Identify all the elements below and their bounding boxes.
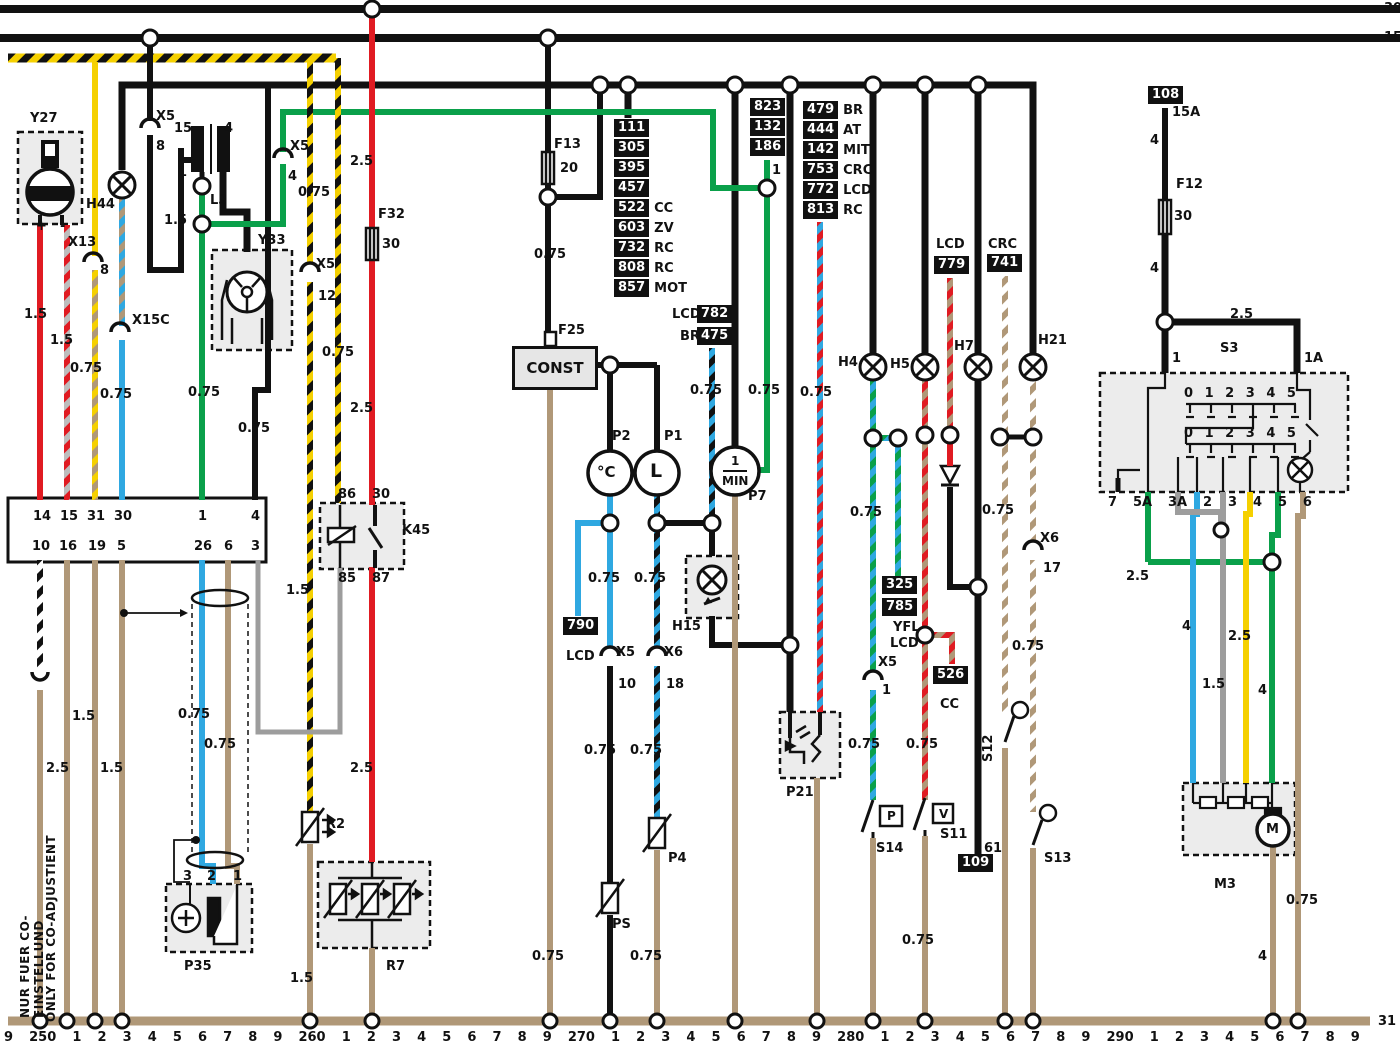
track-number: 8 [248,1030,257,1045]
k45-label: K45 [402,524,430,537]
gauge-label: 4 [1258,684,1267,697]
gauge-label: 0.75 [748,384,780,397]
cluster-pin: 6 [224,540,233,553]
track-number: 6 [1275,1030,1284,1045]
gauge-label: 1.5 [50,334,73,347]
fuse-rating: 30 [382,238,400,251]
track-number: 5 [981,1030,990,1045]
p7-gauge-num: 1 [731,455,739,467]
cluster-pin: 15 [60,510,78,523]
h15-label: H15 [672,620,701,633]
r7-label: R7 [386,960,405,973]
y33-label: Y33 [258,234,286,247]
track-number: 5 [442,1030,451,1045]
track-number: 6 [1006,1030,1015,1045]
s13-switch-icon [1033,805,1056,845]
h44-lamp-icon [109,172,135,198]
x15c-label: X15C [132,314,170,327]
gauge-label: 0.75 [178,708,210,721]
s3-position: 1 [1205,426,1214,441]
rail-30-label: 30 [1384,2,1400,15]
gauge-label: 4 [1258,950,1267,963]
gauge-label: 0.75 [902,934,934,947]
track-number: 2 [367,1030,376,1045]
f25-label: F25 [558,324,585,337]
track-number: 1 [342,1030,351,1045]
track-number: 1 [72,1030,81,1045]
track-number: 4 [686,1030,695,1045]
track-ref-790: 790 [563,617,598,635]
cluster-pin: 1 [198,510,207,523]
pin-label: 4 [288,170,297,183]
track-ref-779: 779 [934,256,969,274]
gauge-label: 0.75 [630,950,662,963]
s3-position: 3 [1246,426,1255,441]
cluster-pin: 3 [251,540,260,553]
track-ref-325: 325 [882,576,917,594]
track-number: 3 [392,1030,401,1045]
r2-label: R2 [326,818,345,831]
gauge-label: 1.5 [1202,678,1225,691]
track-ref-109: 109 [958,854,993,872]
gauge-label: 0.75 [70,362,102,375]
gauge-label: 4 [1150,134,1159,147]
track-ref-475: 475 [697,327,732,345]
f12-fuse-icon [1159,200,1171,234]
variant-label: LCD [566,650,595,663]
s3-pin: 5A [1133,495,1152,510]
track-ref-list-823: 823132186 [750,98,785,158]
track-ref-chip: 808 [614,259,649,277]
track-number: 2 [97,1030,106,1045]
s14-label: S14 [876,842,903,855]
cluster-pin: 30 [114,510,132,523]
gauge-label: 1.5 [24,308,47,321]
pin-label: 87 [372,572,390,585]
track-ref-list-111: 111305395457522CC603ZV732RC808RC857MOT [614,118,687,298]
variant-suffix: RC [654,261,674,276]
track-number: 8 [1056,1030,1065,1045]
h7-label: H7 [954,340,974,353]
track-number: 6 [198,1030,207,1045]
track-ref-chip: 132 [750,118,785,136]
track-number: 8 [787,1030,796,1045]
gauge-label: 0.75 [1286,894,1318,907]
track-ref-chip: 444 [803,121,838,139]
s11-label: S11 [940,828,967,841]
x6-label: X6 [664,646,683,659]
cluster-pin: 5 [117,540,126,553]
gauge-label: 2.5 [1230,308,1253,321]
cluster-pin: 26 [194,540,212,553]
s3-label: S3 [1220,342,1238,355]
h21-label: H21 [1038,334,1067,347]
pin-label: 4 [224,122,233,135]
track-ref-785: 785 [882,598,917,616]
x5-label: X5 [290,140,309,153]
s3-position: 0 [1184,426,1193,441]
pin-label: 12 [318,290,336,303]
variant-suffix: LCD [843,183,872,198]
cluster-pin: 4 [251,510,260,523]
track-number: 1 [1150,1030,1159,1045]
track-ref-chip: 186 [750,138,785,156]
track-number: 1 [880,1030,889,1045]
x13-label: X13 [68,236,96,249]
gauge-label: 0.75 [322,346,354,359]
s3-position: 4 [1266,386,1275,401]
gauge-label: 1.5 [72,710,95,723]
cluster-pin: 14 [33,510,51,523]
track-ref-chip: 111 [614,119,649,137]
h5-lamp-icon [912,354,938,380]
x5-label: X5 [316,258,335,271]
variant-label: CRC [988,238,1017,251]
s3-pin: 5 [1278,495,1287,510]
s11-v-symbol: V [939,808,948,820]
bottom-track-numbers: 9250123456789260123456789270123456789280… [4,1030,1360,1045]
gauge-label: 2.5 [46,762,69,775]
h44-label: H44 [86,198,115,211]
track-number: 2 [636,1030,645,1045]
gauge-label: 4 [1150,262,1159,275]
track-number: 1 [611,1030,620,1045]
pin-label: 86 [338,488,356,501]
track-number: 3 [931,1030,940,1045]
gauge-label: 4 [1182,620,1191,633]
track-number: 4 [417,1030,426,1045]
s3-position-row-2: 012345 [1184,426,1296,441]
s3-position: 1 [1205,386,1214,401]
track-number: 3 [1200,1030,1209,1045]
gauge-label: 0.75 [906,738,938,751]
s14-switch-icon [862,800,902,838]
track-ref-chip: 457 [614,179,649,197]
gauge-label: 0.75 [238,422,270,435]
track-number: 4 [1225,1030,1234,1045]
track-number: 260 [298,1030,325,1045]
gauge-label: 0.75 [982,504,1014,517]
p1-gauge-unit: L [650,462,662,481]
fuse-rating: 20 [560,162,578,175]
track-ref-chip: 753 [803,161,838,179]
rail-31-label: 31 [1378,1015,1396,1028]
pin-label: 1 [772,164,781,177]
s14-p-symbol: P [887,810,896,822]
plus-label: + [36,220,47,233]
cluster-pin: 31 [87,510,105,523]
gauge-label: 2.5 [1126,570,1149,583]
x6-label: X6 [1040,532,1059,545]
diagram-canvas [0,0,1400,1046]
s3-pin: 3 [1228,495,1237,510]
gauge-label: 0.75 [1012,640,1044,653]
x5-label: X5 [156,110,175,123]
pin-label: 17 [1043,562,1061,575]
pin-label: 3 [183,870,192,883]
gauge-label: 2.5 [350,402,373,415]
variant-suffix: MOT [654,281,687,296]
variant-label: LCD [890,637,919,650]
track-number: 5 [712,1030,721,1045]
switch-symbols [862,702,1056,845]
gauge-label: 0.75 [532,950,564,963]
gauge-label: 0.75 [850,506,882,519]
track-number: 280 [837,1030,864,1045]
cluster-pin: 19 [88,540,106,553]
gauge-label: 1.5 [100,762,123,775]
f13-label: F13 [554,138,581,151]
cluster-pin: 10 [32,540,50,553]
gauge-label: 0.75 [588,572,620,585]
f13-fuse-icon [542,152,554,184]
pin-label: 1 [178,166,187,179]
track-ref-chip: 857 [614,279,649,297]
s3-position: 3 [1246,386,1255,401]
p7-label: P7 [748,490,767,503]
gauge-label: 0.75 [630,744,662,757]
gauge-label: 0.75 [204,738,236,751]
s3-pin: 4 [1253,495,1262,510]
p7-gauge-den: MIN [722,475,748,487]
pin-label: 1 [233,870,242,883]
x5-label: X5 [878,656,897,669]
track-number: 5 [1250,1030,1259,1045]
gauge-label: 0.75 [800,386,832,399]
track-ref-chip: 305 [614,139,649,157]
m3-m-symbol: M [1266,823,1279,836]
s3-pin: 2 [1203,495,1212,510]
variant-suffix: MIT [843,143,870,158]
variant-suffix: BR [843,103,863,118]
gauge-label: 0.75 [298,186,330,199]
h4-lamp-icon [860,354,886,380]
f32-fuse-icon [366,228,378,260]
track-ref-chip: 395 [614,159,649,177]
track-number: 2 [906,1030,915,1045]
track-number: 250 [29,1030,56,1045]
track-number: 7 [223,1030,232,1045]
pin-label: 18 [666,678,684,691]
f32-label: F32 [378,208,405,221]
s3-position-row-1: 012345 [1184,386,1296,401]
gauge-label: 1.5 [290,972,313,985]
track-number: 7 [492,1030,501,1045]
f12-label: F12 [1176,178,1203,191]
variant-label: LCD [936,238,965,251]
y27-label: Y27 [30,112,58,125]
const-regulator: CONST [512,346,598,390]
track-ref-chip: 479 [803,101,838,119]
pin-label: 10 [618,678,636,691]
l3-label: L3 [210,194,227,207]
track-number: 9 [1351,1030,1360,1045]
s3-position: 5 [1287,426,1296,441]
note-german: NUR FUER CO-EINSTELLUND [18,818,46,1018]
s3-position: 2 [1225,386,1234,401]
gauge-label: 0.75 [848,738,880,751]
x5-label: X5 [616,646,635,659]
pin-label: 15 [174,122,192,135]
track-ref-list-479: 479BR444AT142MIT753CRC772LCD813RC [803,100,872,220]
s12-switch-icon [1005,702,1028,742]
pin-label: 1 [882,684,891,697]
pin-label: 8 [100,264,109,277]
ps-label: PS [612,918,631,931]
variant-suffix: CC [654,201,673,216]
h7-lamp-icon [965,354,991,380]
p21-label: P21 [786,786,814,799]
s3-pin: 6 [1303,495,1312,510]
gauge-label: 2.5 [350,762,373,775]
p2-gauge-unit: °C [597,465,616,480]
track-number: 4 [956,1030,965,1045]
gauge-label: 0.75 [188,386,220,399]
track-ref-chip: 732 [614,239,649,257]
track-ref-108: 108 [1148,86,1183,104]
variant-label: YFL [893,621,920,634]
gauge-label: 1.5 [164,214,187,227]
gauge-label: 0.75 [584,744,616,757]
track-number: 5 [173,1030,182,1045]
variant-suffix: RC [843,203,863,218]
h5-label: H5 [890,358,910,371]
variant-label: CC [940,698,959,711]
track-number: 2 [1175,1030,1184,1045]
cluster-pin: 16 [59,540,77,553]
rail-15-label: 15 [1384,31,1400,44]
track-ref-chip: 522 [614,199,649,217]
track-number: 8 [518,1030,527,1045]
track-number: 9 [273,1030,282,1045]
pin-label: 1A [1304,352,1323,365]
track-number: 290 [1107,1030,1134,1045]
gauge-label: 2.5 [350,155,373,168]
s3-position: 5 [1287,386,1296,401]
p2-label: P2 [612,430,631,443]
gauge-label: 1.5 [286,584,309,597]
track-number: 7 [1031,1030,1040,1045]
pin-label: 8 [156,140,165,153]
fuse-rating: 15A [1172,106,1200,119]
s3-lamp-icon [1288,458,1312,482]
track-number: 4 [148,1030,157,1045]
track-number: 9 [543,1030,552,1045]
track-number: 9 [812,1030,821,1045]
track-number: 3 [123,1030,132,1045]
track-ref-782: 782 [697,305,732,323]
track-number: 9 [1081,1030,1090,1045]
pin-label: 1 [1172,352,1181,365]
gauge-label: 2.5 [1228,630,1251,643]
p4-label: P4 [668,852,687,865]
s13-label: S13 [1044,852,1071,865]
m3-label: M3 [1214,878,1236,891]
fuse-rating: 30 [1174,210,1192,223]
h4-label: H4 [838,356,858,369]
track-number: 7 [762,1030,771,1045]
p4-resistor-icon [643,814,671,852]
note-english: ONLY FOR CO-ADJUSTIENT [44,822,58,1022]
ps-resistor-icon [596,879,624,917]
track-number: 7 [1300,1030,1309,1045]
track-number: 6 [737,1030,746,1045]
track-number: 3 [661,1030,670,1045]
s3-position: 2 [1225,426,1234,441]
s3-pin: 7 [1108,495,1117,510]
gauge-label: 0.75 [534,248,566,261]
track-ref-chip: 603 [614,219,649,237]
s3-position: 4 [1266,426,1275,441]
minus-label: - [60,220,65,233]
gauge-label: 0.75 [634,572,666,585]
variant-suffix: ZV [654,221,674,236]
variant-suffix: CRC [843,163,872,178]
track-ref-chip: 772 [803,181,838,199]
track-ref-chip: 142 [803,141,838,159]
variant-suffix: RC [654,241,674,256]
h21-lamp-icon [1020,354,1046,380]
track-ref-chip: 813 [803,201,838,219]
s3-pin-row: 75A3A23456 [1108,495,1312,510]
variant-suffix: AT [843,123,861,138]
pin-label: 30 [372,488,390,501]
p1-label: P1 [664,430,683,443]
pin-label: 85 [338,572,356,585]
wiring-diagram: Y27 + - 1.5 1.5 X13 8 0.75 H44 X15C 0.75… [0,0,1400,1046]
s3-pin: 3A [1168,495,1187,510]
gauge-label: 0.75 [100,388,132,401]
track-ref-chip: 823 [750,98,785,116]
gauge-label: 0.75 [690,384,722,397]
track-ref-526: 526 [933,666,968,684]
track-number: 270 [568,1030,595,1045]
s12-label: S12 [982,735,995,762]
track-number: 8 [1326,1030,1335,1045]
track-number: 6 [467,1030,476,1045]
s3-position: 0 [1184,386,1193,401]
track-number: 9 [4,1030,13,1045]
p35-label: P35 [184,960,212,973]
track-ref-741: 741 [987,254,1022,272]
pin-label: 2 [207,870,216,883]
